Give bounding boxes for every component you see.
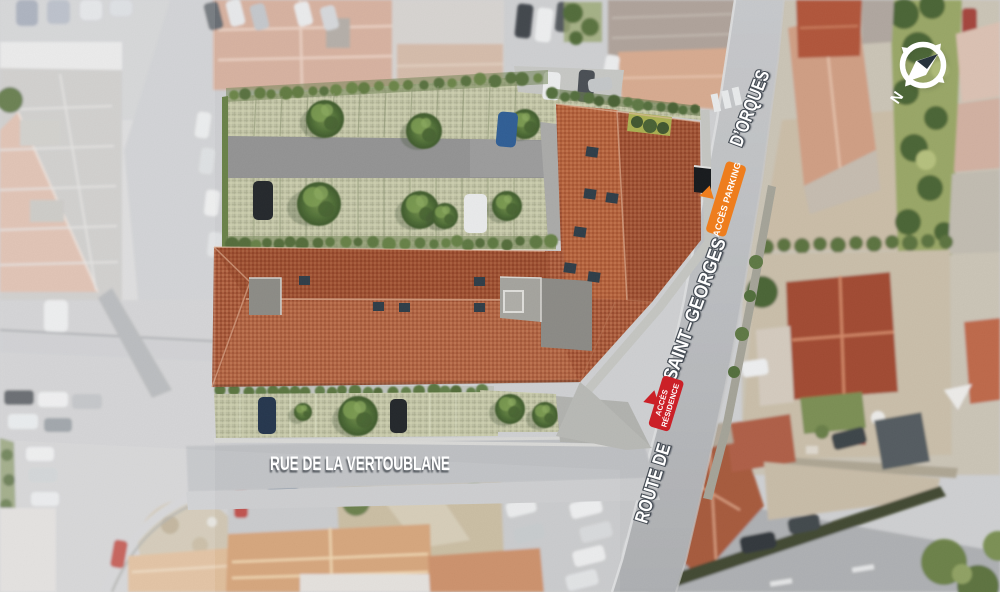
svg-text:RUE DE LA VERTOUBLANE: RUE DE LA VERTOUBLANE [270,454,450,475]
